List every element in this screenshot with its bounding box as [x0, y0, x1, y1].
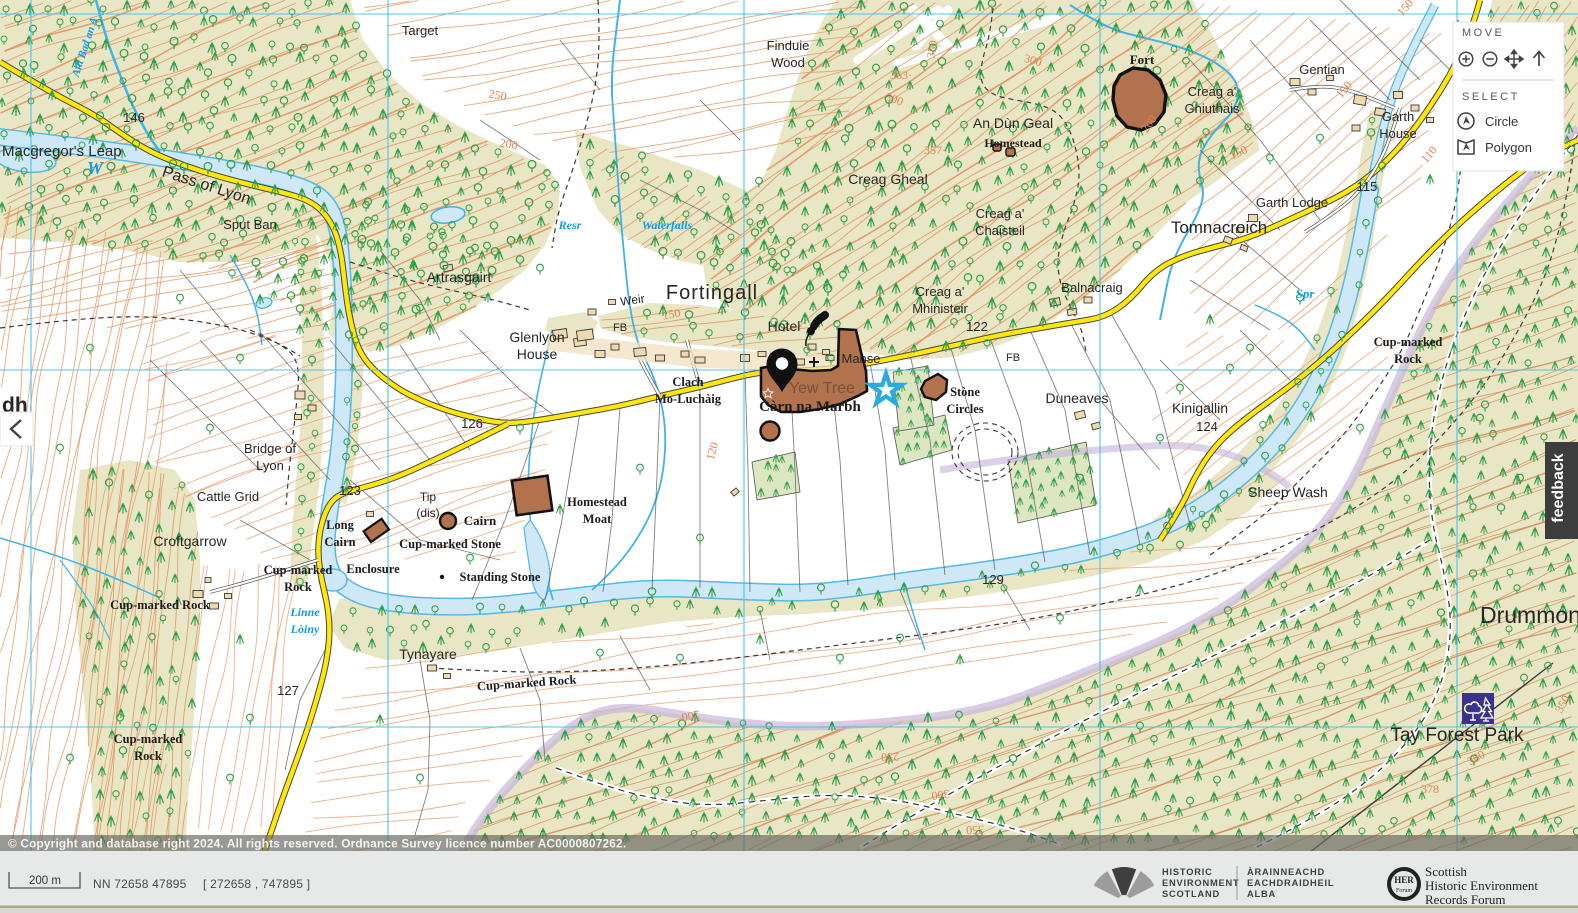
svg-text:Rock: Rock [284, 580, 312, 594]
svg-text:Bridge of: Bridge of [244, 441, 296, 456]
svg-text:378: 378 [1421, 782, 1439, 796]
svg-text:Wood: Wood [771, 55, 805, 70]
svg-text:Artrasgairt: Artrasgairt [427, 269, 492, 285]
svg-text:363·: 363· [890, 68, 912, 82]
svg-text:Sput Ban: Sput Ban [223, 217, 277, 232]
svg-text:Waterfalls: Waterfalls [642, 218, 693, 232]
svg-text:Mo-Luchàig: Mo-Luchàig [655, 392, 722, 406]
svg-text:Fortingall: Fortingall [666, 282, 758, 304]
svg-text:Duneaves: Duneaves [1045, 390, 1108, 406]
svg-text:Glenlyon: Glenlyon [509, 329, 564, 345]
svg-text:Lyon: Lyon [256, 458, 284, 473]
svg-text:feedback: feedback [1550, 453, 1567, 522]
svg-text:122: 122 [966, 319, 988, 334]
svg-text:146: 146 [123, 110, 145, 125]
svg-text:Cup-marked: Cup-marked [264, 563, 333, 577]
svg-text:© Copyright and database right: © Copyright and database right 2024. All… [8, 837, 626, 851]
svg-text:124: 124 [1196, 419, 1218, 434]
svg-text:HER: HER [1394, 875, 1414, 885]
svg-text:Gentian: Gentian [1299, 62, 1345, 77]
svg-text:Cairn: Cairn [324, 535, 355, 549]
svg-text:Creag Gheal: Creag Gheal [848, 171, 927, 187]
svg-text:Forum: Forum [1396, 888, 1412, 894]
svg-text:HISTORIC: HISTORIC [1162, 867, 1213, 877]
svg-text:Linne: Linne [289, 605, 320, 619]
svg-text:EACHDRAIDHEIL: EACHDRAIDHEIL [1247, 878, 1334, 888]
svg-text:Finduie: Finduie [767, 38, 810, 53]
svg-text:Ghiuthais: Ghiuthais [1185, 101, 1240, 116]
svg-text:Standing Stone: Standing Stone [460, 570, 541, 584]
svg-text:Homestead: Homestead [984, 136, 1042, 150]
svg-text:ALBA: ALBA [1247, 889, 1276, 899]
svg-text:Tynayare: Tynayare [399, 646, 457, 662]
svg-text:Creag a': Creag a' [1188, 84, 1237, 99]
svg-text:Chaisteil: Chaisteil [975, 223, 1025, 238]
svg-text:Spr: Spr [1296, 286, 1316, 301]
svg-text:Rock: Rock [134, 749, 162, 763]
svg-text:SELECT: SELECT [1462, 91, 1520, 103]
svg-text:Croftgarrow: Croftgarrow [153, 533, 227, 549]
svg-text:NN 72658 47895: NN 72658 47895 [93, 877, 187, 891]
svg-text:357·: 357· [924, 143, 946, 157]
svg-text:ENVIRONMENT: ENVIRONMENT [1162, 878, 1240, 888]
svg-text:Cairn: Cairn [464, 513, 497, 528]
svg-text:127: 127 [277, 683, 299, 698]
svg-text:Fort: Fort [1130, 52, 1155, 67]
svg-text:Rock: Rock [1394, 352, 1422, 366]
svg-text:Balnacraig: Balnacraig [1061, 280, 1122, 295]
svg-text:Garth Lodge: Garth Lodge [1256, 195, 1328, 210]
svg-text:Creag a': Creag a' [916, 284, 965, 299]
svg-text:Drummond: Drummond [1480, 602, 1578, 628]
svg-text:Circles: Circles [946, 402, 983, 416]
svg-text:Garth: Garth [1382, 109, 1415, 124]
svg-text:Mhinisteir: Mhinisteir [912, 301, 968, 316]
svg-text:Cup-marked Stone: Cup-marked Stone [399, 537, 501, 551]
svg-text:Scottish: Scottish [1425, 864, 1467, 879]
svg-text:Tay Forest Park: Tay Forest Park [1390, 725, 1524, 746]
svg-text:House: House [1379, 126, 1417, 141]
svg-text:Stòne: Stòne [950, 385, 980, 399]
svg-text:W: W [87, 158, 105, 178]
svg-text:[ 272658 , 747895 ]: [ 272658 , 747895 ] [203, 877, 310, 891]
svg-text:Polygon: Polygon [1485, 140, 1532, 155]
svg-text:Circle: Circle [1485, 114, 1518, 129]
svg-text:Yew Tree: Yew Tree [789, 380, 855, 397]
svg-text:Moat: Moat [583, 512, 612, 526]
svg-text:129: 129 [982, 572, 1004, 587]
svg-text:FB: FB [1006, 352, 1020, 364]
svg-text:MOVE: MOVE [1462, 27, 1504, 39]
svg-text:Càrn na Marbh: Càrn na Marbh [759, 399, 861, 415]
svg-text:200 m: 200 m [29, 875, 61, 887]
svg-text:FB: FB [613, 322, 627, 334]
svg-text:300: 300 [931, 787, 951, 803]
svg-text:115: 115 [1357, 179, 1378, 194]
svg-text:Enclosure: Enclosure [346, 562, 400, 576]
svg-text:Historic Environment: Historic Environment [1425, 878, 1538, 893]
svg-text:ÀRAINNEACHD: ÀRAINNEACHD [1247, 867, 1325, 877]
svg-text:123: 123 [339, 483, 361, 498]
svg-text:SCOTLAND: SCOTLAND [1162, 889, 1220, 899]
svg-text:Cattle Grid: Cattle Grid [197, 489, 259, 504]
svg-text:Manse: Manse [841, 351, 880, 366]
svg-text:Cup-marked: Cup-marked [114, 732, 183, 746]
svg-text:Homestead: Homestead [567, 495, 627, 509]
svg-text:Long: Long [326, 518, 355, 532]
svg-text:Target: Target [402, 23, 439, 38]
svg-text:Resr: Resr [558, 218, 582, 232]
svg-text:Hotel: Hotel [768, 318, 801, 334]
svg-text:Cup-marked: Cup-marked [1374, 335, 1443, 349]
svg-text:Clach: Clach [672, 375, 703, 389]
svg-text:Records Forum: Records Forum [1425, 892, 1506, 907]
svg-text:Lòiny: Lòiny [290, 622, 320, 636]
svg-text:Cup-marked Rock: Cup-marked Rock [110, 598, 210, 612]
svg-text:Sheep Wash: Sheep Wash [1248, 484, 1328, 500]
svg-text:250: 250 [881, 750, 899, 765]
svg-text:Tomnacroich: Tomnacroich [1171, 218, 1267, 237]
svg-text:An Dùn Geal: An Dùn Geal [973, 115, 1053, 131]
svg-text:Creag a': Creag a' [976, 206, 1025, 221]
svg-text:Macgregor's Leap: Macgregor's Leap [2, 143, 122, 160]
svg-text:126: 126 [461, 416, 483, 431]
svg-text:Tip: Tip [420, 490, 437, 504]
svg-text:(dis): (dis) [416, 506, 439, 520]
svg-text:Kinigallin: Kinigallin [1172, 400, 1228, 416]
svg-text:House: House [517, 346, 558, 362]
